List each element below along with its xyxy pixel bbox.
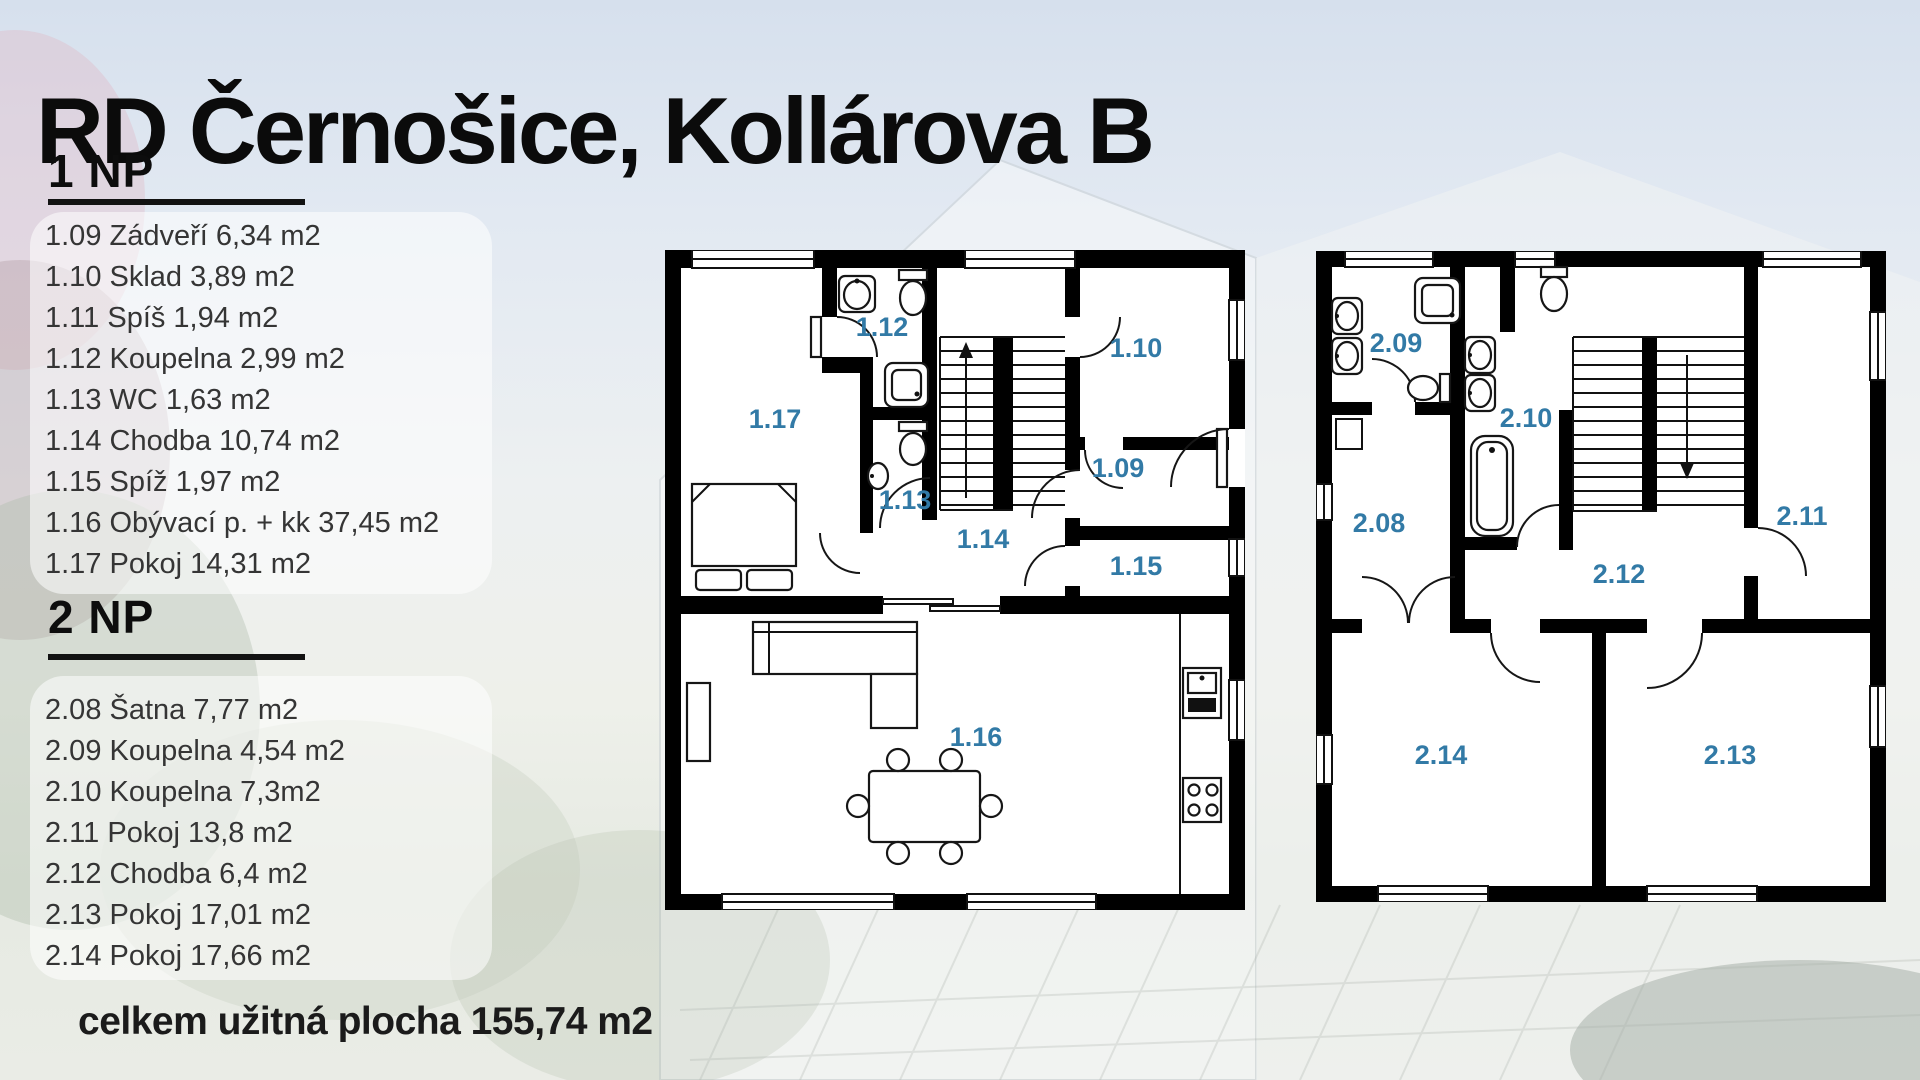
room-list-item: 2.11 Pokoj 13,8 m2: [45, 813, 345, 854]
room-list-item: 2.10 Koupelna 7,3m2: [45, 772, 345, 813]
toilet-icon: [899, 270, 927, 280]
entry-door-leaf: [1217, 429, 1227, 487]
floor2-underline: [48, 654, 305, 660]
room-list-item: 2.09 Koupelna 4,54 m2: [45, 731, 345, 772]
sideboard: [687, 683, 710, 761]
plan-room-label: 1.14: [957, 524, 1010, 554]
plan-room-label: 1.15: [1110, 551, 1163, 581]
door-leaf: [811, 317, 821, 357]
page-title: RD Černošice, Kollárova B: [36, 77, 1152, 185]
sofa: [753, 622, 917, 674]
floorplan-2np: 2.09 2.10 2.08 2.11 2.12 2.14 2.13: [1316, 251, 1886, 902]
bed: [692, 484, 796, 566]
toilet-icon: [899, 422, 927, 431]
plan-room-label: 2.10: [1500, 403, 1553, 433]
plan-room-label: 2.11: [1776, 501, 1827, 531]
toilet-icon: [1440, 374, 1450, 402]
room-list-item: 1.12 Koupelna 2,99 m2: [45, 339, 439, 380]
room-list-item: 1.15 Spíž 1,97 m2: [45, 462, 439, 503]
toilet-icon: [1541, 267, 1567, 277]
room-list-item: 1.16 Obývací p. + kk 37,45 m2: [45, 503, 439, 544]
room-list-item: 2.14 Pokoj 17,66 m2: [45, 936, 345, 977]
plan-room-label: 2.12: [1593, 559, 1646, 589]
plan1-sliding-door: [883, 596, 1000, 614]
plan-room-label: 2.14: [1415, 740, 1468, 770]
room-list-item: 1.11 Spíš 1,94 m2: [45, 298, 439, 339]
room-list-item: 2.13 Pokoj 17,01 m2: [45, 895, 345, 936]
total-area-line: celkem užitná plocha 155,74 m2: [78, 1000, 653, 1044]
plan-room-label: 2.13: [1704, 740, 1757, 770]
floor1-heading: 1 NP: [48, 144, 154, 198]
floor1-room-list: 1.09 Zádveří 6,34 m2 1.10 Sklad 3,89 m2 …: [45, 216, 439, 585]
room-list-item: 2.08 Šatna 7,77 m2: [45, 690, 345, 731]
page: RD Černošice, Kollárova B 1 NP 1.09 Zádv…: [0, 0, 1920, 1080]
floor1-underline: [48, 199, 305, 205]
room-list-item: 1.13 WC 1,63 m2: [45, 380, 439, 421]
plan-room-label: 1.09: [1092, 453, 1145, 483]
plan-room-label: 2.09: [1370, 328, 1423, 358]
plan-room-label: 1.16: [950, 722, 1003, 752]
room-list-item: 1.09 Zádveří 6,34 m2: [45, 216, 439, 257]
plan-room-label: 1.10: [1110, 333, 1163, 363]
dining-table: [869, 771, 980, 842]
floor2-room-list: 2.08 Šatna 7,77 m2 2.09 Koupelna 4,54 m2…: [45, 690, 345, 977]
plan-room-label: 1.13: [879, 485, 932, 515]
room-list-item: 2.12 Chodba 6,4 m2: [45, 854, 345, 895]
room-list-item: 1.10 Sklad 3,89 m2: [45, 257, 439, 298]
floorplan-1np: 1.12 1.17 1.10 1.09 1.13 1.14 1.15 1.16: [665, 250, 1245, 910]
plan-room-label: 2.08: [1353, 508, 1406, 538]
room-list-item: 1.14 Chodba 10,74 m2: [45, 421, 439, 462]
plan-room-label: 1.17: [749, 404, 802, 434]
floor2-heading: 2 NP: [48, 590, 154, 644]
plan-room-label: 1.12: [856, 312, 909, 342]
room-list-item: 1.17 Pokoj 14,31 m2: [45, 544, 439, 585]
